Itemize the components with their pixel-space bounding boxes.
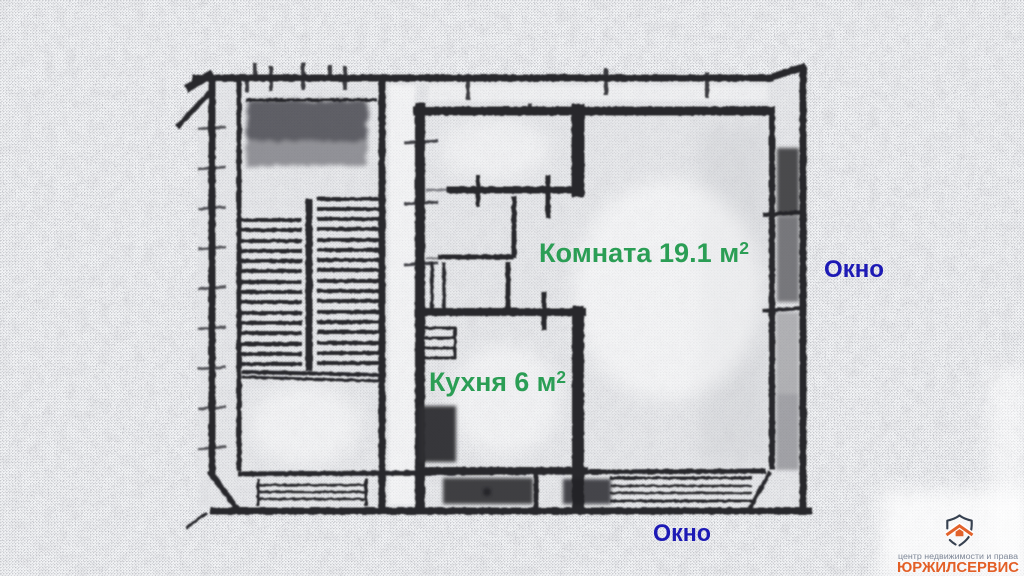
svg-text:Окно: Окно (653, 520, 711, 547)
svg-text:ЮРЖИЛСЕРВИС: ЮРЖИЛСЕРВИС (897, 560, 1020, 576)
svg-text:Кухня 6 м2: Кухня 6 м2 (429, 367, 566, 397)
svg-text:Окно: Окно (824, 256, 884, 283)
svg-text:Комната 19.1 м2: Комната 19.1 м2 (539, 238, 749, 268)
